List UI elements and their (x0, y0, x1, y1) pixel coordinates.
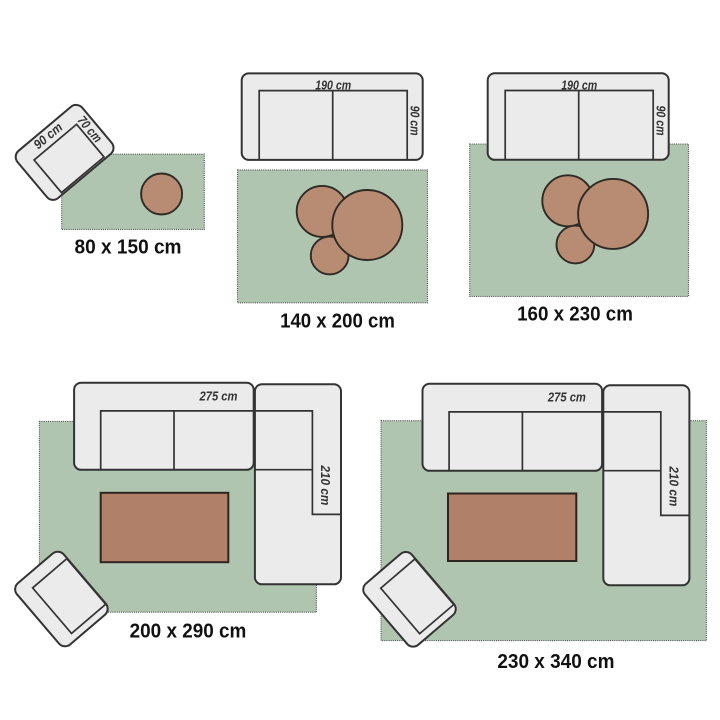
svg-text:80 x 150 cm: 80 x 150 cm (75, 237, 182, 259)
svg-text:275 cm: 275 cm (547, 390, 586, 405)
svg-text:230 x 340 cm: 230 x 340 cm (497, 651, 614, 673)
svg-text:140 x 200 cm: 140 x 200 cm (280, 311, 395, 333)
svg-text:200 x 290 cm: 200 x 290 cm (130, 621, 247, 643)
svg-text:190 cm: 190 cm (561, 77, 597, 92)
svg-text:210 cm: 210 cm (666, 465, 681, 506)
svg-text:190 cm: 190 cm (315, 77, 351, 92)
svg-text:90 cm: 90 cm (408, 106, 423, 136)
svg-text:90 cm: 90 cm (654, 106, 669, 136)
svg-text:210 cm: 210 cm (318, 464, 333, 505)
svg-text:160 x 230 cm: 160 x 230 cm (517, 304, 633, 326)
svg-text:275 cm: 275 cm (199, 389, 238, 404)
